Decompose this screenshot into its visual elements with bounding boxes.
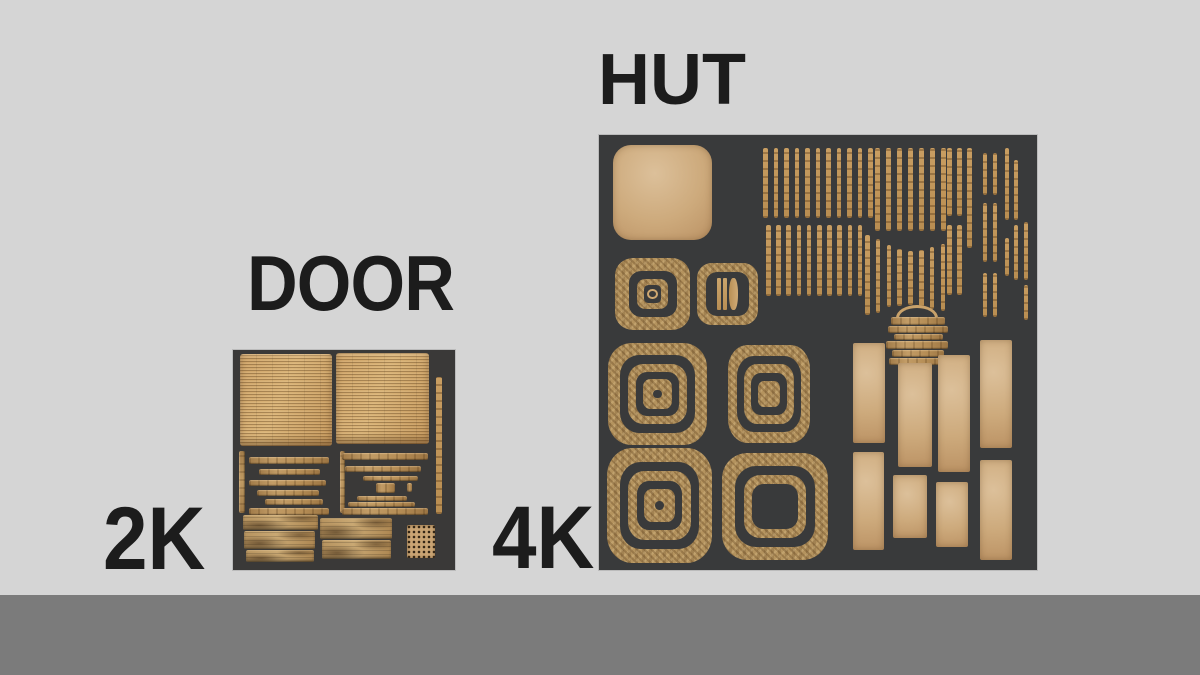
texture-piece-plank [320, 518, 392, 539]
weave-ring [744, 475, 807, 538]
texture-piece-vstrip [919, 148, 924, 231]
ring-gap [636, 372, 678, 416]
door-title: DOOR [247, 244, 454, 322]
texture-piece-vstrip [983, 203, 987, 262]
texture-piece-vstrip [837, 225, 842, 296]
texture-piece-smooth [980, 460, 1012, 560]
door-resolution-label: 2K [103, 494, 205, 583]
texture-piece-target [722, 453, 828, 560]
hut-texture-atlas [599, 135, 1037, 570]
center-bar [717, 278, 720, 311]
texture-piece-plank [246, 550, 314, 562]
texture-piece-plank [244, 531, 315, 549]
texture-piece-smooth [893, 475, 927, 538]
ring-gap [751, 373, 787, 416]
texture-piece-vstrip [766, 225, 771, 296]
texture-piece-thatch [336, 353, 429, 444]
texture-piece-vstrip [1014, 225, 1018, 280]
texture-piece-slatv [239, 451, 245, 513]
texture-piece-slat [249, 480, 326, 486]
weave-ring [644, 489, 675, 522]
texture-piece-slat [265, 499, 323, 505]
texture-piece-vstrip [817, 225, 822, 296]
texture-piece-smooth [853, 343, 885, 443]
weave-ring [628, 471, 690, 539]
texture-piece-vstrip [930, 247, 935, 309]
texture-piece-vstrip [858, 225, 863, 296]
texture-piece-vstrip [795, 148, 800, 218]
texture-piece-target [615, 258, 690, 330]
texture-piece-vstrip [816, 148, 821, 218]
texture-piece-vstrip [983, 153, 987, 195]
weave-ring [758, 381, 780, 408]
texture-piece-slat [345, 466, 421, 472]
texture-piece-vstrip [868, 148, 873, 218]
ring-gap [620, 462, 700, 549]
texture-piece-slat [363, 476, 418, 481]
texture-piece-vstrip [947, 225, 952, 295]
texture-piece-target [697, 263, 758, 325]
texture-piece-vstrip [827, 225, 832, 296]
texture-piece-smooth [853, 452, 884, 550]
texture-piece-slat [259, 469, 320, 475]
texture-piece-vstrip [805, 148, 810, 218]
ring-gap [637, 481, 682, 530]
texture-piece-vstrip [876, 239, 881, 313]
texture-piece-vstrip [957, 148, 962, 216]
texture-piece-vstrip [887, 245, 892, 307]
texture-piece-vstrip [886, 148, 891, 231]
texture-piece-vstrip [919, 250, 924, 307]
texture-piece-target [728, 345, 810, 443]
center-dot [655, 501, 664, 510]
texture-piece-vstrip [941, 244, 946, 311]
center-bar [723, 278, 726, 311]
center-dot [653, 390, 661, 398]
texture-piece-plank [322, 540, 391, 559]
texture-piece-slat [407, 483, 412, 492]
texture-piece-speckle [407, 525, 435, 558]
ring-gap [735, 466, 816, 547]
texture-piece-vstrip [908, 148, 913, 231]
ring-gap [752, 484, 797, 530]
texture-piece-vstrip [826, 148, 831, 218]
floor-bar [0, 595, 1200, 675]
texture-piece-vstrip [967, 148, 972, 248]
ring-gap [644, 285, 662, 302]
texture-piece-vstrip [897, 148, 902, 231]
texture-piece-vstrip [930, 148, 935, 231]
ring-gap [620, 355, 695, 433]
texture-piece-smooth [936, 482, 968, 547]
texture-piece-target [608, 343, 707, 445]
texture-piece-vstrip [1005, 238, 1009, 276]
texture-piece-slat [886, 341, 948, 349]
texture-piece-thatch [240, 354, 332, 446]
texture-piece-vstrip [875, 148, 880, 231]
texture-piece-slat [342, 508, 428, 515]
texture-piece-vstrip [807, 225, 812, 296]
texture-piece-smooth [898, 363, 932, 467]
texture-piece-target [607, 448, 712, 563]
texture-piece-vstrip [1014, 160, 1018, 220]
texture-piece-vstrip [1024, 285, 1028, 320]
texture-piece-smooth [938, 355, 970, 472]
texture-piece-smooth [980, 340, 1012, 448]
texture-piece-vstrip [858, 148, 863, 218]
texture-piece-vstrip [837, 148, 842, 218]
weave-ring [744, 364, 794, 424]
texture-piece-slat [891, 317, 945, 325]
texture-piece-vstrip [865, 235, 870, 315]
texture-piece-vstrip [776, 225, 781, 296]
texture-piece-vstrip [983, 273, 987, 317]
ring-gap [737, 356, 801, 432]
texture-piece-vstrip [786, 225, 791, 296]
texture-piece-vstrip [774, 148, 779, 218]
center-circle-outline [647, 289, 658, 300]
hut-resolution-label: 4K [492, 493, 594, 582]
texture-piece-slat [357, 496, 407, 501]
texture-piece-slat [892, 350, 944, 357]
texture-piece-vstrip [993, 153, 997, 195]
texture-piece-plank [243, 515, 318, 530]
texture-piece-vstrip [797, 225, 802, 296]
ring-gap [629, 271, 677, 317]
texture-piece-slat [348, 502, 415, 507]
texture-piece-slatv [340, 451, 345, 513]
texture-piece-vstrip [941, 148, 946, 231]
texture-piece-vstrip [847, 148, 852, 218]
texture-piece-vstrip [908, 251, 913, 305]
texture-piece-smooth [613, 145, 712, 240]
texture-piece-vstrip [993, 203, 997, 262]
texture-piece-vstrip [957, 225, 962, 295]
texture-piece-vstrip [763, 148, 768, 218]
texture-piece-vstrip [1005, 148, 1009, 220]
texture-piece-vstrip [947, 148, 952, 216]
texture-piece-vstrip [897, 249, 902, 306]
hut-title: HUT [598, 44, 746, 116]
center-bar [729, 278, 738, 311]
texture-piece-slat [249, 508, 329, 515]
texture-piece-vstrip [848, 225, 853, 296]
weave-ring [637, 279, 669, 309]
door-texture-atlas [233, 350, 455, 570]
texture-piece-slat [894, 334, 943, 340]
weave-ring [643, 379, 672, 409]
texture-piece-vstrip [993, 273, 997, 317]
slide-canvas: HUT DOOR 2K 4K [0, 0, 1200, 675]
texture-piece-vstrip [784, 148, 789, 218]
texture-piece-slat [888, 326, 948, 333]
ring-gap [706, 272, 749, 315]
texture-piece-slat [376, 483, 395, 493]
texture-piece-vstrip [1024, 222, 1028, 280]
weave-ring [628, 364, 687, 425]
texture-piece-slat [342, 453, 428, 460]
texture-piece-slat [257, 490, 319, 496]
texture-piece-vstrip [436, 377, 442, 514]
texture-piece-slat [249, 457, 329, 464]
